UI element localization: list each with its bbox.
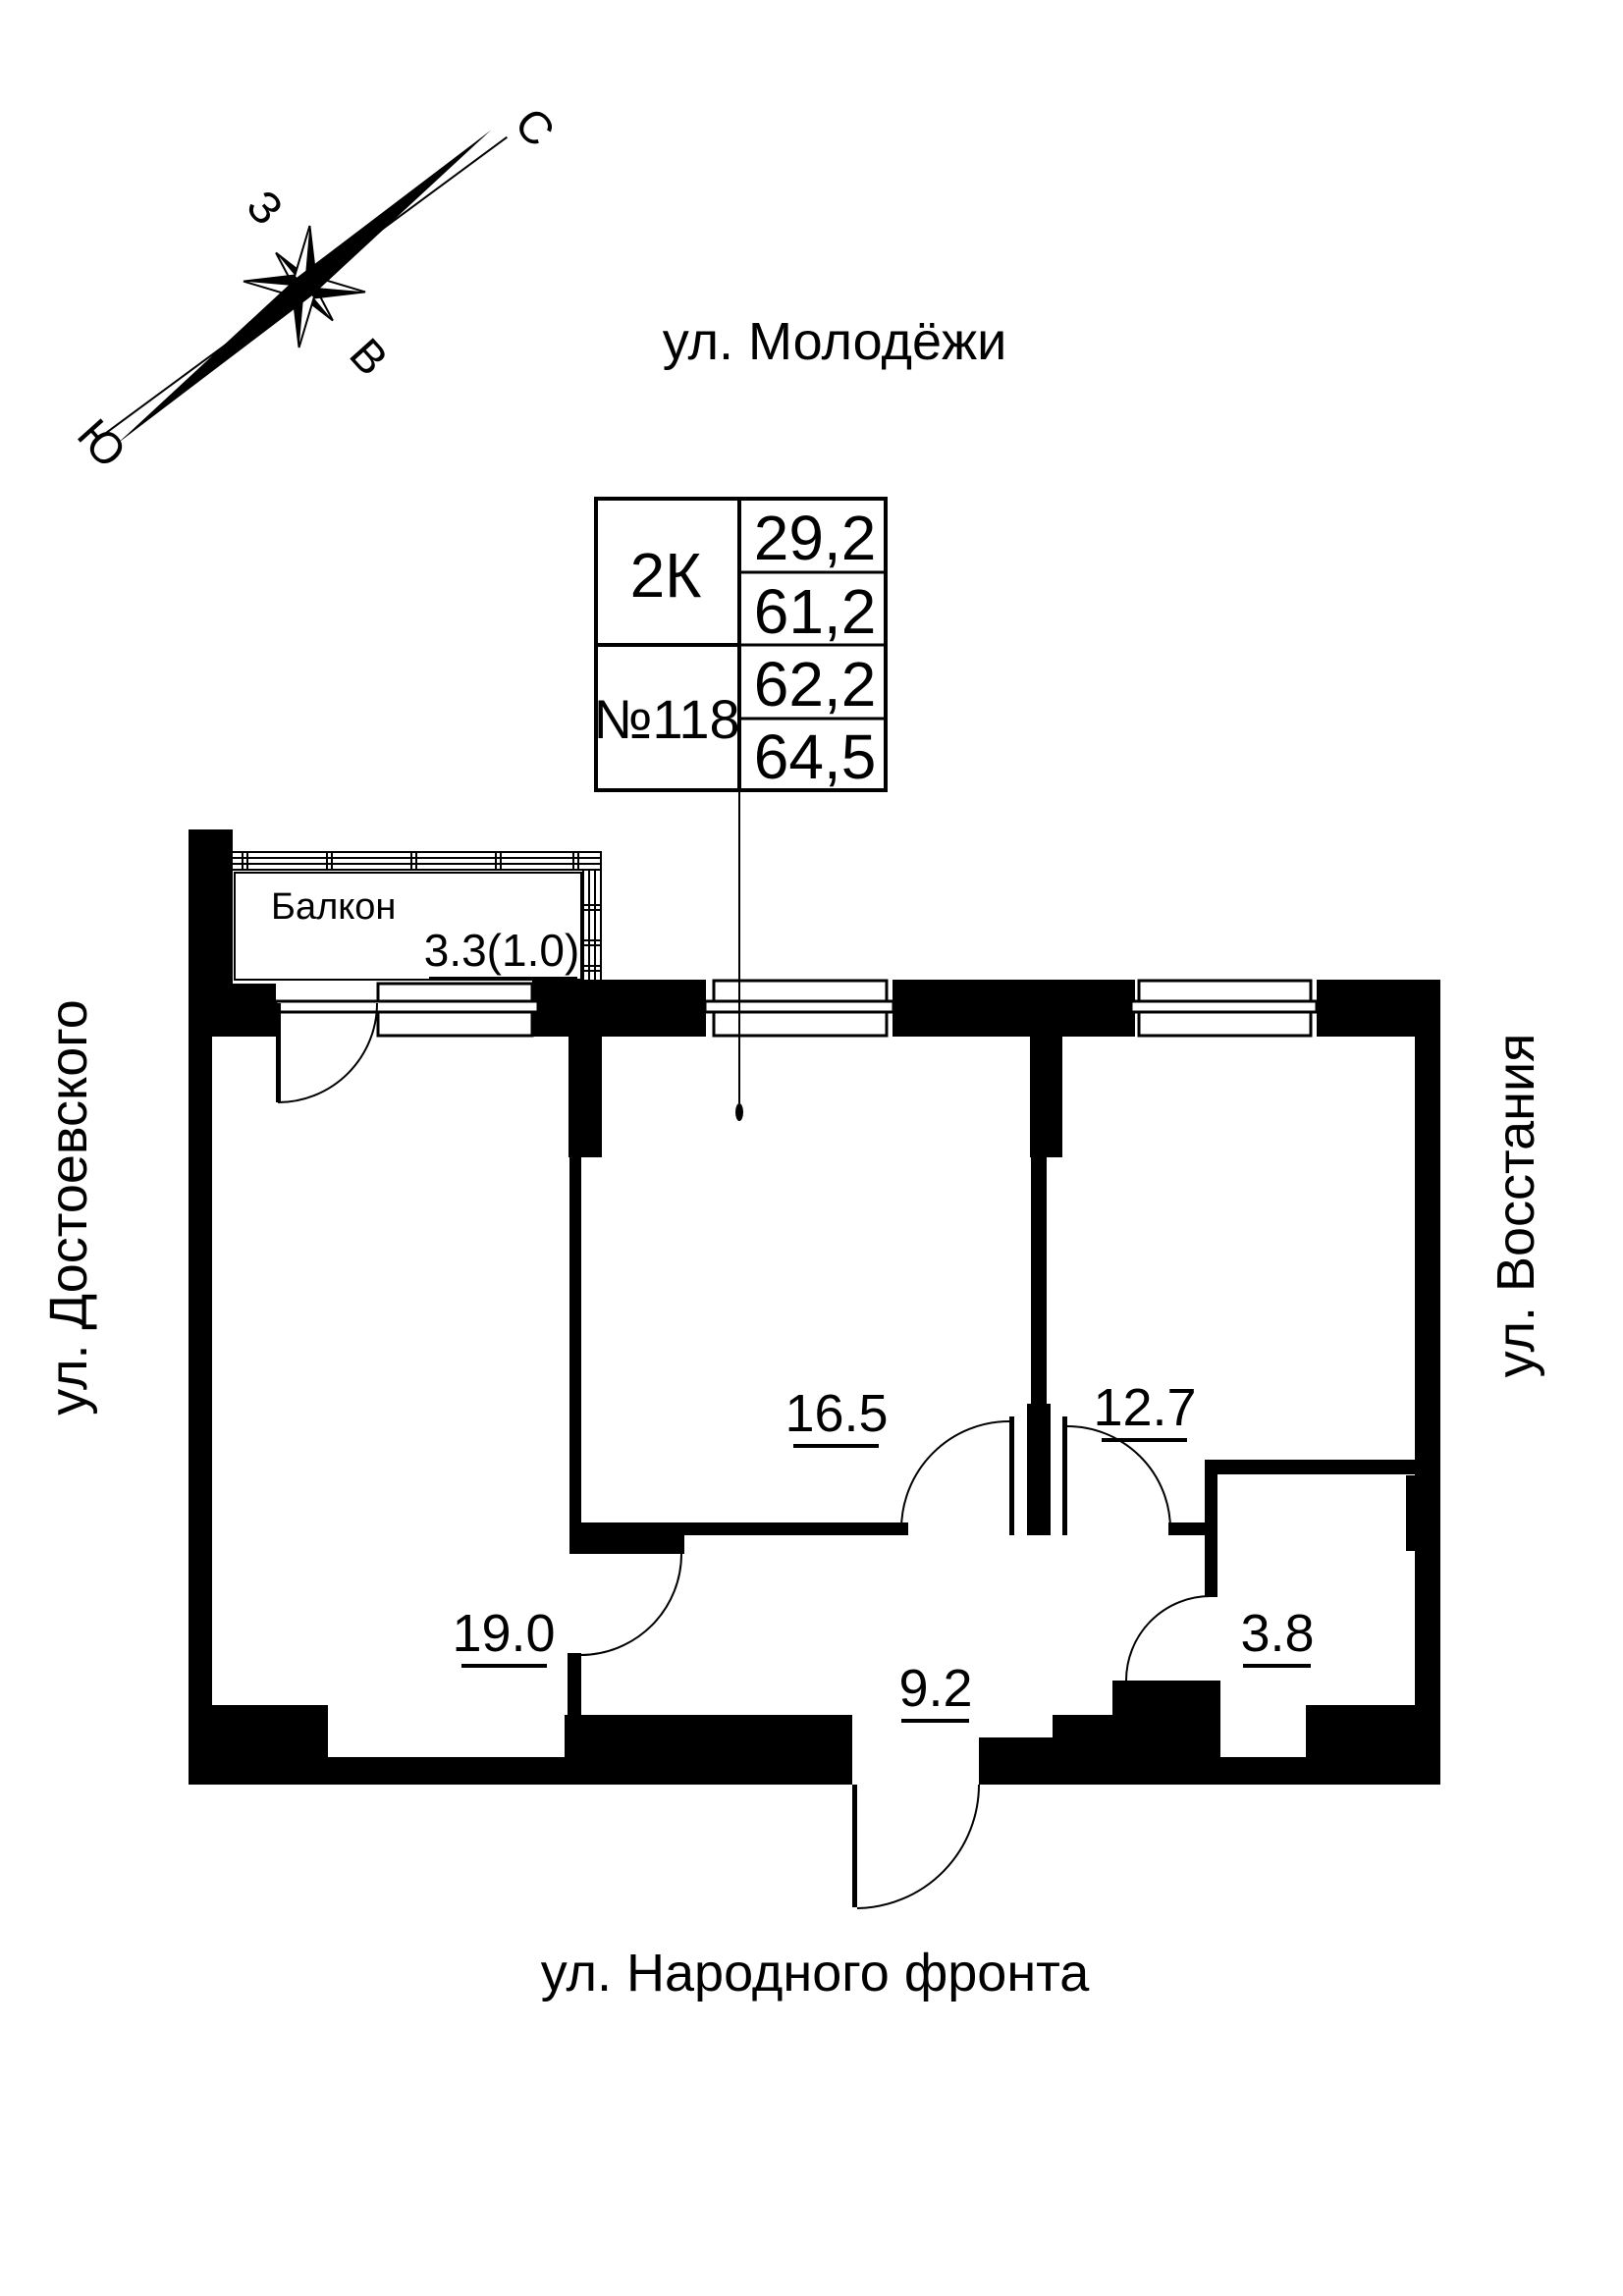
room2-door-arc [901, 1421, 1009, 1529]
wall-segment [532, 980, 706, 1037]
wall-segment [328, 1757, 565, 1785]
window-sill-room1 [276, 1001, 538, 1012]
bath-area-label: 3.8 [1240, 1604, 1314, 1663]
floor-plan-page: С З В Ю ул. Молодёжи ул. Достоевского ул… [0, 0, 1623, 2296]
wall-segment [189, 1037, 212, 1705]
wall-segment [1317, 980, 1415, 1037]
wall-segment [189, 984, 276, 1037]
wall-segment [684, 1522, 908, 1535]
compass-rose-icon: С З В Ю [68, 91, 565, 482]
wall-segment [1205, 1460, 1415, 1474]
bath-door-arc [1126, 1596, 1211, 1681]
street-label-top: ул. Молодёжи [663, 312, 1007, 371]
wall-segment [569, 1522, 684, 1554]
wall-segment [1415, 980, 1440, 1705]
street-label-right: ул. Восстания [1487, 1034, 1545, 1378]
wall-segment [568, 1037, 602, 1157]
wall-segment [979, 1737, 1220, 1785]
leader-dot [735, 1103, 743, 1121]
wall-segment [1406, 1475, 1415, 1551]
balcony-railing-top [229, 852, 601, 870]
room3-door-leaf [1062, 1416, 1067, 1535]
area-value-3: 62,2 [754, 649, 877, 720]
wall-segment [565, 1715, 852, 1785]
compass-needle [110, 121, 498, 452]
area-value-4: 64,5 [754, 721, 877, 792]
compass-label-east: В [340, 328, 398, 385]
room2-door-leaf [1009, 1416, 1014, 1535]
wall-segment [569, 1157, 581, 1522]
balcony-door-arc [278, 1003, 377, 1102]
room3-area-label: 12.7 [1093, 1378, 1196, 1437]
street-label-bottom: ул. Народного фронта [541, 1944, 1091, 2002]
room1-area-label: 19.0 [452, 1604, 555, 1663]
balcony-railing-right [583, 870, 601, 985]
apartment-type: 2К [630, 540, 702, 611]
balcony-area-label: 3.3(1.0) [424, 925, 580, 976]
entrance-door-arc [857, 1785, 979, 1908]
room2-area-label: 16.5 [784, 1384, 888, 1443]
wall-segment [189, 829, 233, 984]
balcony-label: Балкон [271, 886, 396, 928]
wall-segment [189, 1705, 328, 1785]
wall-segment [1112, 1681, 1220, 1715]
wall-segment [1030, 1037, 1062, 1157]
wall-segment [893, 980, 1135, 1037]
area-value-1: 29,2 [754, 503, 877, 573]
area-value-2: 61,2 [754, 576, 877, 647]
balcony-door-leaf [276, 1003, 281, 1102]
wall-segment [568, 1653, 581, 1715]
floor-plan-drawing: С З В Ю ул. Молодёжи ул. Достоевского ул… [0, 0, 1623, 2296]
apartment-number: №118 [593, 688, 739, 750]
wall-segment [1220, 1757, 1306, 1785]
wall-segment [1053, 1715, 1220, 1737]
compass-label-west: З [237, 181, 293, 235]
window-sill-room3 [1131, 1001, 1317, 1012]
balcony: Балкон 3.3(1.0) [229, 852, 601, 985]
street-label-left: ул. Достоевского [39, 999, 98, 1415]
wall-segment [1031, 1157, 1047, 1416]
compass-label-north: С [505, 98, 565, 156]
wall-segment [1306, 1705, 1440, 1785]
wall-segment [1027, 1404, 1051, 1535]
entrance-door-leaf [852, 1785, 857, 1907]
room1-door-arc [580, 1554, 681, 1655]
window-sill-room2 [705, 1001, 893, 1012]
hall-area-label: 9.2 [898, 1659, 972, 1718]
wall-segment [1205, 1460, 1217, 1597]
apartment-info-table: 2К №118 29,2 61,2 62,2 64,5 [593, 499, 886, 792]
windows [276, 981, 1317, 1036]
